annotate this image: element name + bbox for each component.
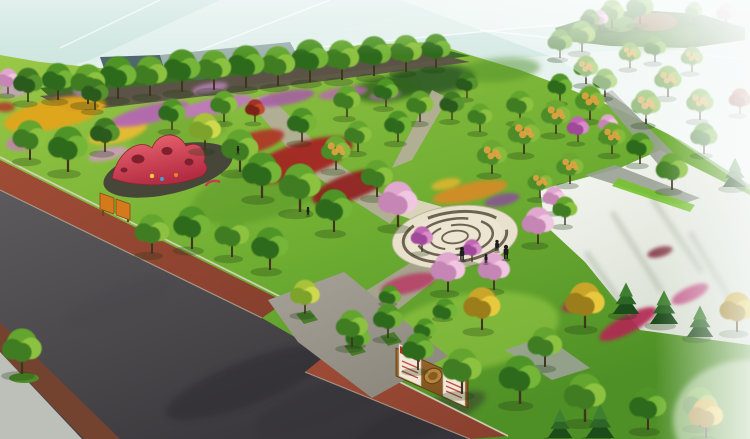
play-toy (174, 173, 178, 177)
park-rendering (0, 0, 750, 439)
play-toy (160, 177, 164, 181)
play-toy (150, 174, 154, 178)
park-rendering-canvas (0, 0, 750, 439)
